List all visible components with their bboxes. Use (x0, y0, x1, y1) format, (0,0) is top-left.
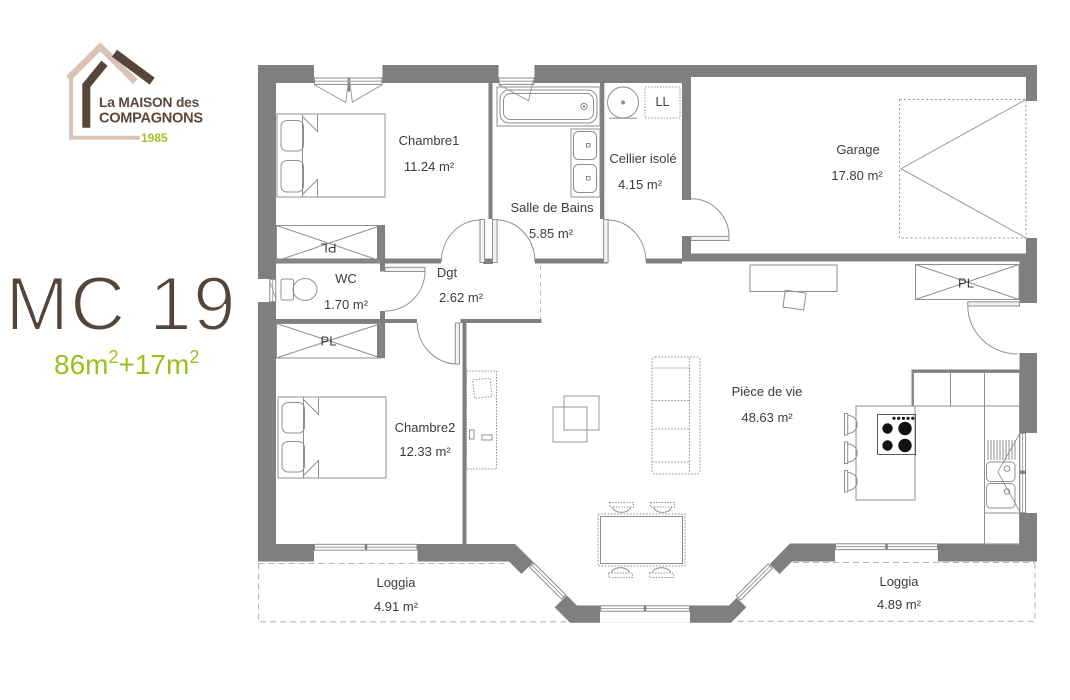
svg-text:5.85 m²: 5.85 m² (529, 226, 574, 241)
svg-text:17.80 m²: 17.80 m² (831, 168, 883, 183)
svg-text:1.70 m²: 1.70 m² (324, 297, 369, 312)
svg-text:Chambre2: Chambre2 (395, 420, 456, 435)
svg-text:Cellier isolé: Cellier isolé (609, 151, 676, 166)
svg-text:MC 19: MC 19 (6, 262, 237, 347)
svg-text:Garage: Garage (836, 142, 879, 157)
svg-text:Loggia: Loggia (879, 574, 919, 589)
svg-text:COMPAGNONS: COMPAGNONS (99, 111, 203, 127)
svg-text:4.15 m²: 4.15 m² (618, 177, 663, 192)
svg-text:Dgt: Dgt (437, 265, 458, 280)
svg-text:PL: PL (958, 276, 974, 291)
svg-text:4.89 m²: 4.89 m² (877, 597, 922, 612)
svg-text:11.24 m²: 11.24 m² (404, 159, 455, 174)
svg-text:12.33 m²: 12.33 m² (399, 444, 451, 459)
svg-text:PL: PL (321, 241, 337, 256)
svg-text:Chambre1: Chambre1 (399, 133, 460, 148)
svg-text:PL: PL (321, 334, 337, 349)
svg-text:1985: 1985 (141, 131, 168, 145)
svg-text:Salle de Bains: Salle de Bains (510, 200, 594, 215)
svg-text:Pièce de vie: Pièce de vie (732, 384, 803, 399)
svg-text:48.63 m²: 48.63 m² (741, 410, 793, 425)
svg-text:LL: LL (656, 95, 670, 109)
svg-text:2.62 m²: 2.62 m² (439, 290, 484, 305)
svg-text:4.91 m²: 4.91 m² (374, 599, 419, 614)
svg-text:86m2+17m2: 86m2+17m2 (54, 347, 199, 380)
svg-text:La MAISON des: La MAISON des (99, 95, 200, 110)
svg-text:WC: WC (335, 271, 357, 286)
svg-text:Loggia: Loggia (376, 575, 416, 590)
